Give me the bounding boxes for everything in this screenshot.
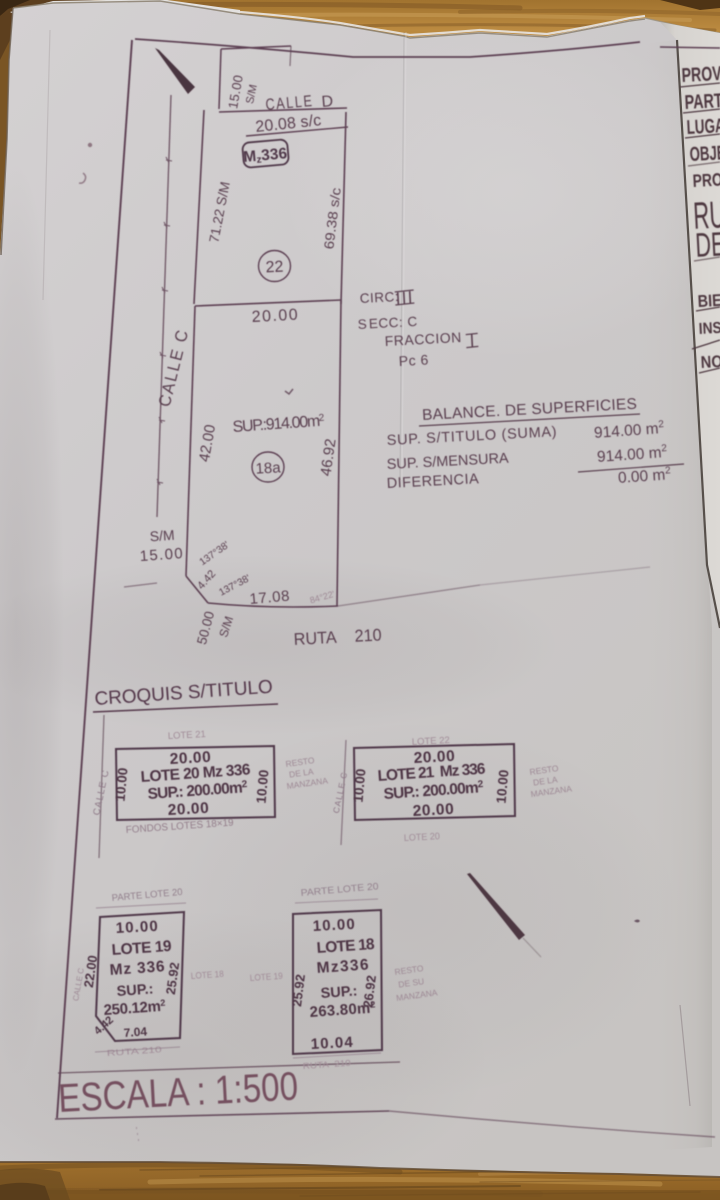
svg-text:7.04: 7.04 xyxy=(123,1024,148,1040)
svg-text:Pc 6: Pc 6 xyxy=(398,351,429,369)
svg-text:SUP.:: SUP.: xyxy=(320,983,358,1002)
svg-text:10.04: 10.04 xyxy=(310,1034,353,1053)
svg-text:D: D xyxy=(321,93,334,111)
svg-text:S ECC: C: S ECC: C xyxy=(357,314,418,332)
svg-text:22: 22 xyxy=(265,259,284,277)
svg-text:20.00: 20.00 xyxy=(412,801,454,820)
svg-text:INS: INS xyxy=(698,320,720,338)
svg-text:10.00: 10.00 xyxy=(113,767,131,802)
svg-text:10.00: 10.00 xyxy=(351,768,369,803)
svg-text:PRO: PRO xyxy=(692,169,720,191)
svg-text:CIRC:: CIRC: xyxy=(359,289,399,306)
svg-text:20.00: 20.00 xyxy=(251,307,298,326)
svg-text:10.00: 10.00 xyxy=(494,769,512,804)
svg-text:17.08: 17.08 xyxy=(249,588,290,608)
svg-text:0.00 m2: 0.00 m2 xyxy=(617,465,672,487)
svg-text:S/M: S/M xyxy=(149,527,175,545)
svg-text:18a: 18a xyxy=(255,459,282,477)
svg-text:10.00: 10.00 xyxy=(312,916,355,935)
svg-text:20.00: 20.00 xyxy=(167,800,209,819)
svg-text:LOTE 20: LOTE 20 xyxy=(404,831,441,844)
svg-text:15.00: 15.00 xyxy=(139,545,183,565)
svg-text:SUP.:: SUP.: xyxy=(116,981,154,1000)
svg-text:10.00: 10.00 xyxy=(254,769,272,804)
svg-text:LOTE 21: LOTE 21 xyxy=(168,729,207,742)
svg-text:10.00: 10.00 xyxy=(115,918,158,937)
